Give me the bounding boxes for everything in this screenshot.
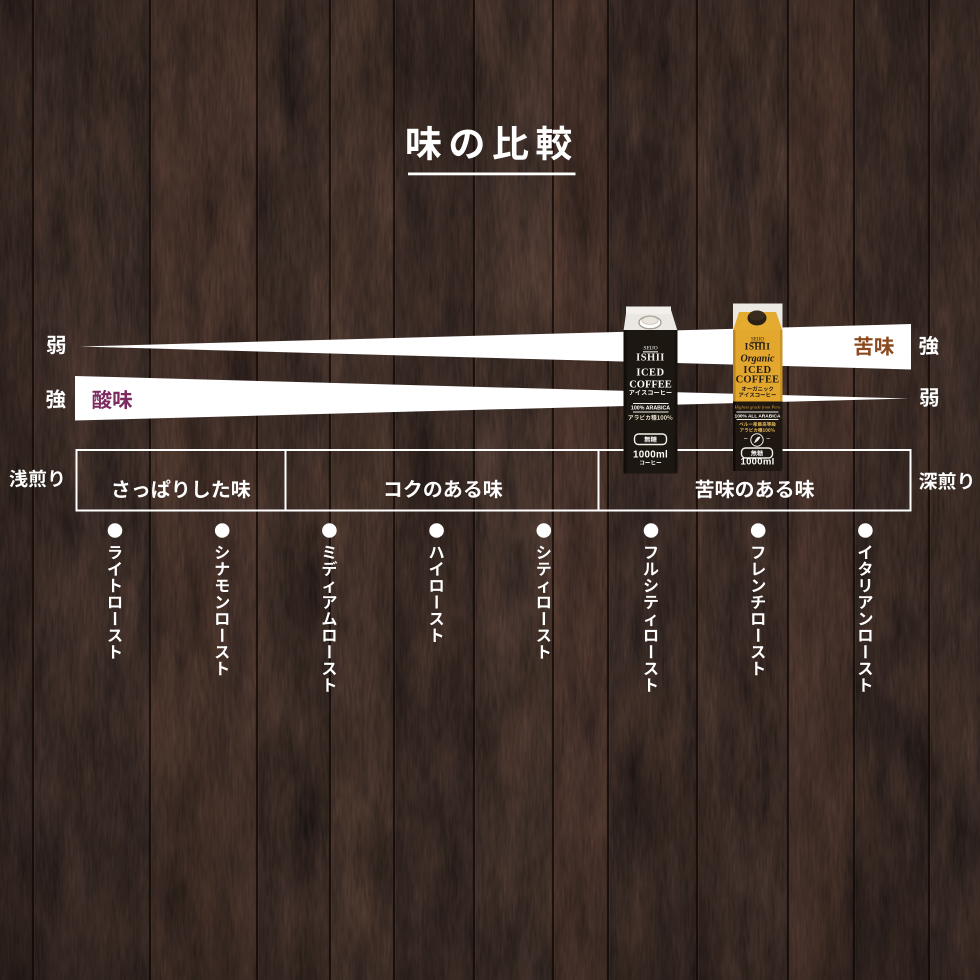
- svg-text:ICED: ICED: [636, 368, 664, 379]
- svg-text:Organic: Organic: [741, 354, 775, 365]
- svg-text:100% ALL ARABICA: 100% ALL ARABICA: [735, 414, 781, 420]
- svg-text:COFFEE: COFFEE: [736, 375, 780, 386]
- svg-text:Highest grade from Peru: Highest grade from Peru: [734, 405, 782, 410]
- svg-text:SEIJO: SEIJO: [643, 346, 657, 352]
- svg-text:ISHII: ISHII: [636, 353, 665, 364]
- svg-text:100% ARABICA: 100% ARABICA: [631, 406, 670, 412]
- svg-text:1000ml: 1000ml: [740, 457, 774, 468]
- svg-text:1000ml: 1000ml: [633, 450, 668, 461]
- svg-text:ISHII: ISHII: [745, 343, 771, 353]
- svg-text:COFFEE: COFFEE: [629, 380, 672, 391]
